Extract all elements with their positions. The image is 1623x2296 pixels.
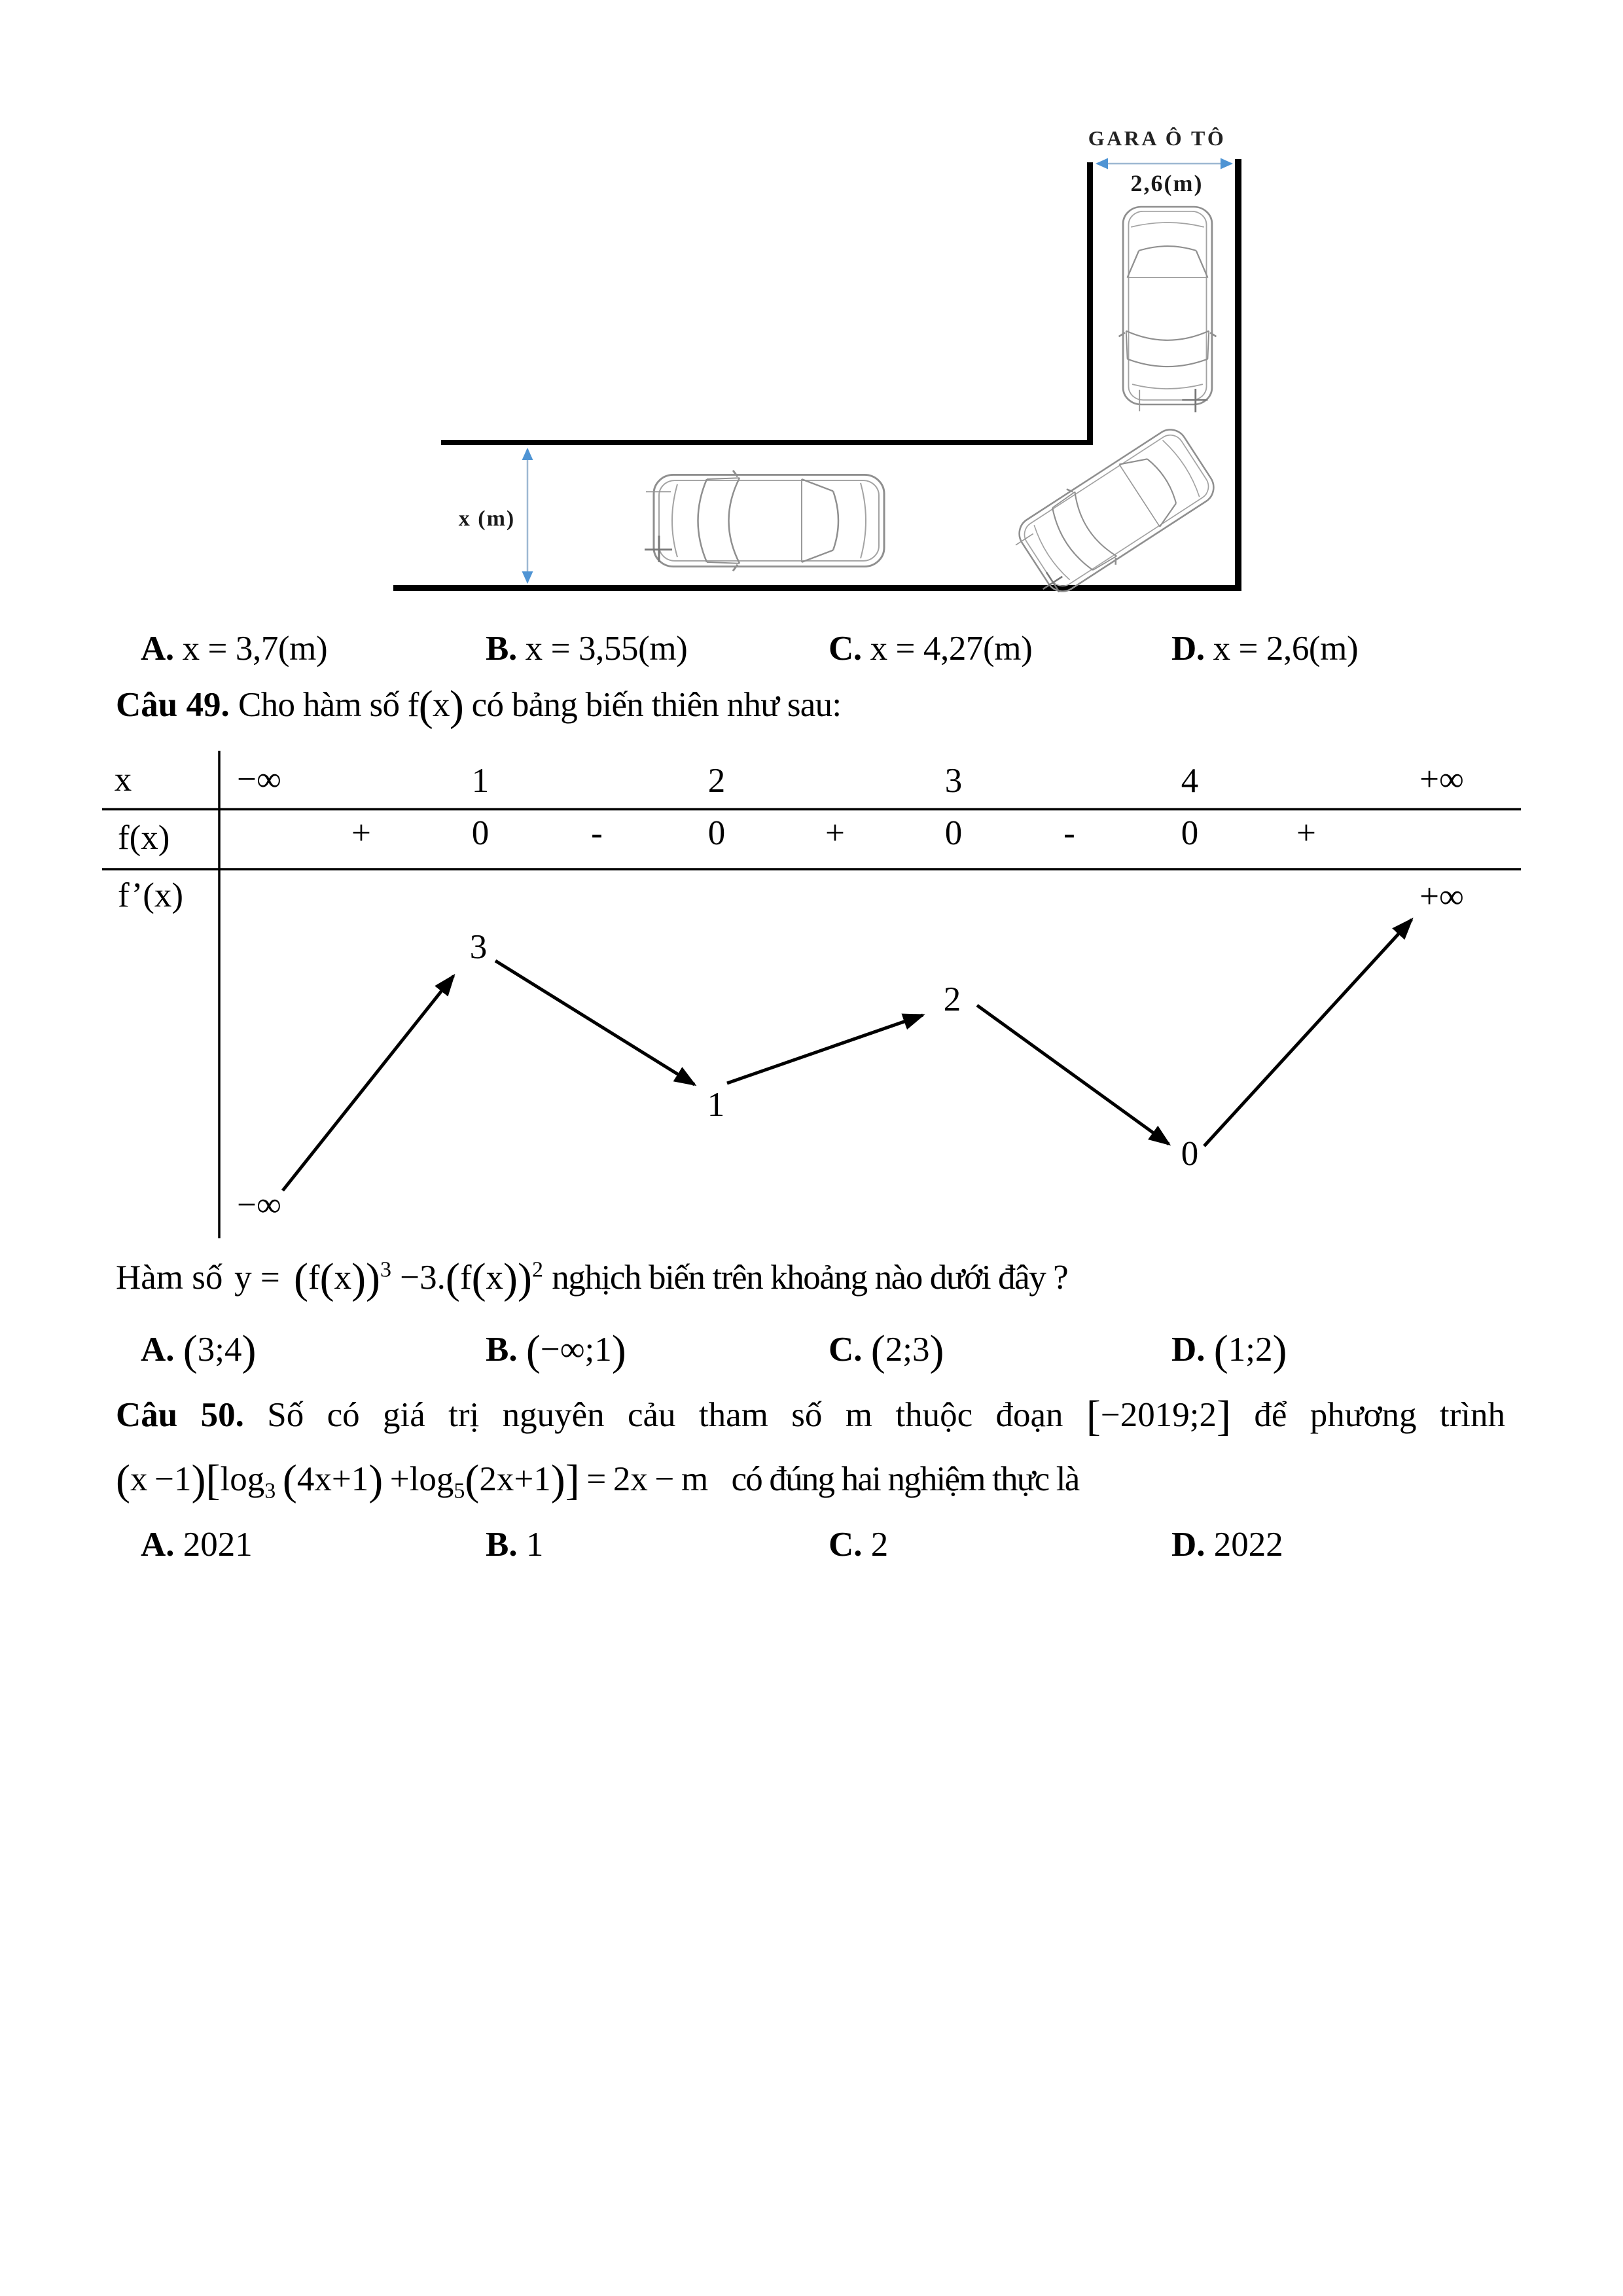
svg-text:2: 2 (708, 762, 726, 800)
svg-text:−∞: −∞ (237, 1186, 281, 1224)
svg-text:1: 1 (472, 762, 490, 800)
svg-text:0: 0 (945, 814, 963, 852)
svg-text:-: - (591, 814, 603, 852)
svg-text:−∞: −∞ (237, 761, 281, 798)
svg-text:x: x (115, 761, 132, 798)
svg-text:+: + (1296, 814, 1316, 852)
svg-text:+∞: +∞ (1419, 761, 1464, 798)
svg-text:0: 0 (1181, 1135, 1199, 1173)
svg-text:0: 0 (1181, 814, 1199, 852)
svg-text:f’(x): f’(x) (118, 876, 183, 914)
svg-text:2,6(m): 2,6(m) (1131, 170, 1204, 196)
svg-text:0: 0 (472, 814, 490, 852)
svg-text:f(x): f(x) (118, 819, 169, 857)
svg-text:3: 3 (945, 762, 963, 800)
svg-text:3: 3 (470, 928, 488, 966)
svg-text:+: + (351, 814, 371, 852)
svg-text:-: - (1063, 814, 1075, 852)
svg-text:x (m): x (m) (459, 507, 515, 531)
svg-text:GARA Ô TÔ: GARA Ô TÔ (1088, 126, 1226, 150)
svg-text:2: 2 (944, 980, 961, 1018)
svg-text:+: + (825, 814, 845, 852)
svg-text:1: 1 (707, 1086, 725, 1124)
svg-text:0: 0 (708, 814, 726, 852)
svg-text:4: 4 (1181, 762, 1199, 800)
svg-text:+∞: +∞ (1419, 878, 1464, 916)
